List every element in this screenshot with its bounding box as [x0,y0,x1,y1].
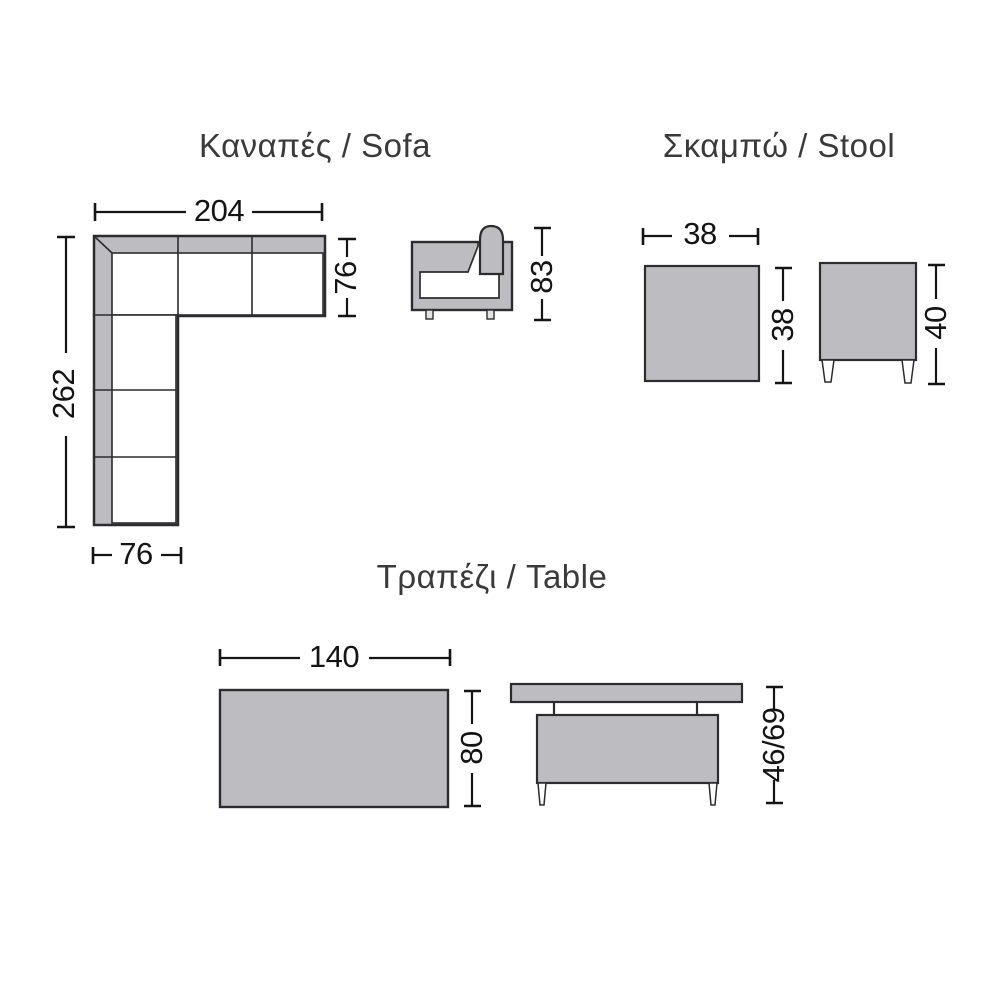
stool-depth-dim-label: 38 [765,308,801,341]
stool-width-dim-label: 38 [683,216,716,252]
table-side-body [537,715,718,783]
table-side-leg-left [538,783,546,805]
furniture-dimensions-diagram: Καναπές / Sofa Σκαμπώ / Stool Τραπέζι / … [0,0,1000,1000]
stool-side-body [820,263,916,360]
sofa-length-dim-label: 262 [46,369,82,419]
table-width-dim-label: 140 [309,639,359,675]
table-side-leg-right [709,783,717,805]
table-depth-dim-label: 80 [454,731,490,764]
stool-side-view [820,263,916,383]
table-side-tabletop [511,684,742,702]
sofa-side-leg-right [487,310,494,319]
sofa-seat-row-horizontal [112,253,323,315]
table-top-view [220,690,448,807]
sofa-height-dim-label: 83 [524,260,560,293]
sofa-seat-row-vertical [112,315,176,523]
stool-side-leg-left [822,360,834,382]
stool-side-leg-right [902,360,914,383]
sofa-side-backrest [480,226,503,274]
sofa-depth-dim-label: 76 [328,261,364,294]
sofa-top-view [94,236,325,525]
stool-height-dim-label: 40 [918,306,954,339]
table-height-dim-label: 46/69 [756,707,792,782]
table-side-lift-stems [554,702,697,715]
stool-section-title: Σκαμπώ / Stool [663,127,895,165]
sofa-arm-width-dim-label: 76 [119,536,152,572]
sofa-side-leg-left [426,310,433,319]
sofa-width-dim-label: 204 [194,193,244,229]
sofa-side-view [412,226,512,319]
table-side-view [511,684,742,805]
stool-top-view [645,266,759,381]
table-section-title: Τραπέζι / Table [377,558,608,596]
sofa-section-title: Καναπές / Sofa [199,127,431,165]
